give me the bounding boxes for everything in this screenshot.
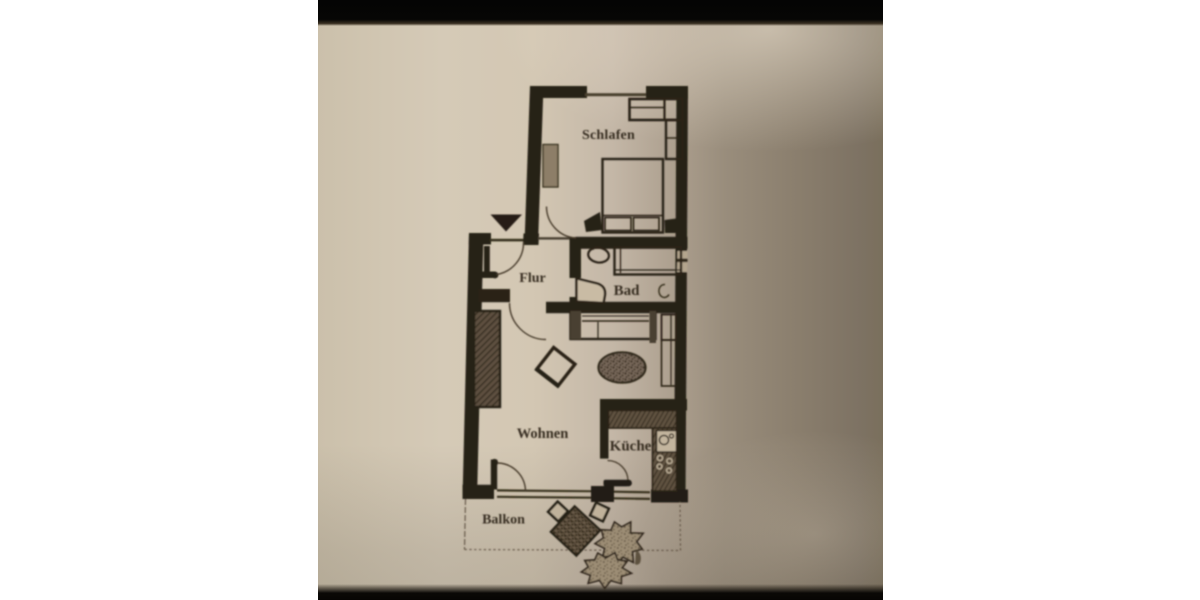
svg-text:Wohnen: Wohnen [517, 426, 569, 442]
svg-text:Schlafen: Schlafen [582, 128, 635, 143]
svg-text:Bad: Bad [614, 283, 641, 299]
svg-text:Flur: Flur [519, 271, 545, 286]
svg-text:Balkon: Balkon [482, 513, 525, 528]
svg-text:Küche: Küche [610, 439, 652, 455]
